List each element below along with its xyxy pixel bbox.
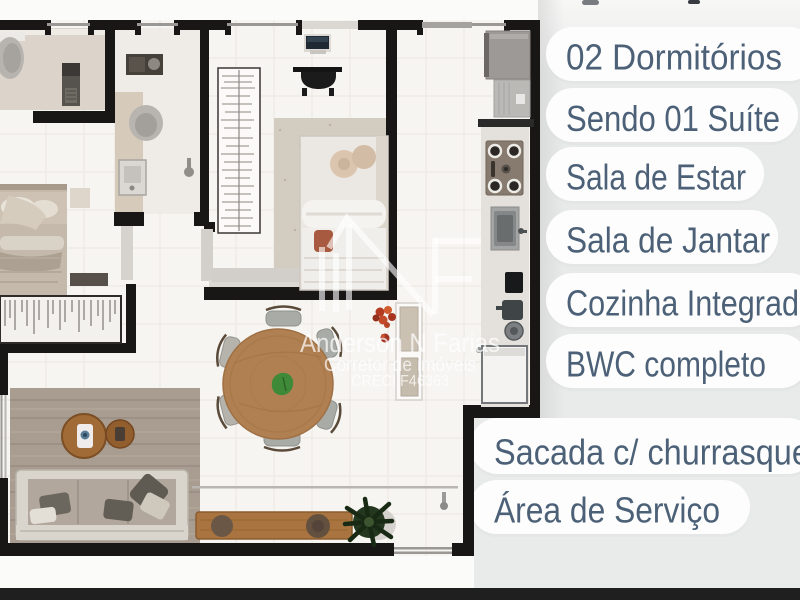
svg-text:Sacada c/ churrasqueira: Sacada c/ churrasqueira: [494, 432, 800, 473]
svg-text:Anderson N Farias: Anderson N Farias: [300, 328, 500, 358]
svg-text:Cozinha Integrada: Cozinha Integrada: [566, 283, 800, 324]
svg-text:CRECI F46363: CRECI F46363: [351, 373, 449, 390]
svg-text:Área de Serviço: Área de Serviço: [494, 490, 720, 531]
svg-text:02 Dormitórios: 02 Dormitórios: [566, 37, 782, 78]
svg-text:Sala de Jantar: Sala de Jantar: [566, 220, 770, 261]
svg-text:Sendo 01 Suíte: Sendo 01 Suíte: [566, 98, 780, 139]
svg-text:BWC completo: BWC completo: [566, 344, 766, 385]
svg-text:Sala de Estar: Sala de Estar: [566, 157, 746, 198]
